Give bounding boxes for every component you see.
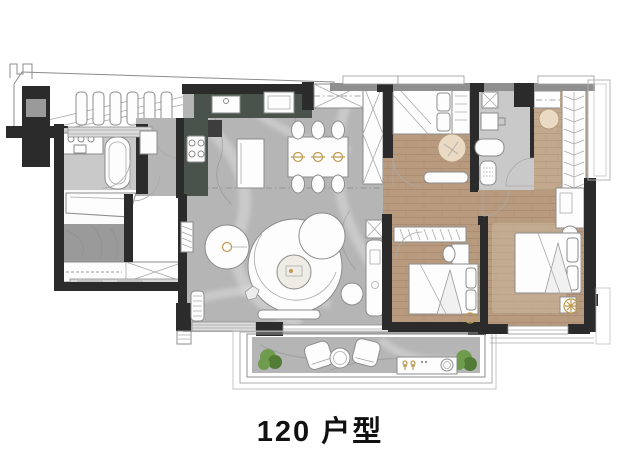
pillow-icon <box>437 113 450 131</box>
tv-console-icon <box>366 240 384 316</box>
sofa-bench <box>258 310 320 319</box>
bathtub-icon <box>475 139 504 156</box>
pillow-icon <box>567 238 578 262</box>
toilet-icon <box>480 161 496 185</box>
shaft-column-2 <box>22 137 50 167</box>
fridge-icon <box>140 131 157 154</box>
balcony-chair-icon <box>351 337 381 367</box>
balcony-table-icon <box>330 348 350 368</box>
coffee-table-icon <box>277 255 311 289</box>
pillow-icon <box>437 93 450 111</box>
tall-cabinet <box>363 84 383 184</box>
cooker-hood-icon <box>264 92 294 113</box>
right-hall <box>534 90 564 200</box>
window-band <box>192 322 256 331</box>
ottoman-icon <box>539 109 559 129</box>
rug-icon <box>424 172 468 183</box>
bedroom-3 <box>382 214 484 332</box>
column <box>514 83 534 107</box>
window-band <box>343 76 398 84</box>
pillow-icon <box>466 268 476 288</box>
desk-chair-icon <box>443 246 455 262</box>
corner-column <box>10 64 32 79</box>
washing-machine-icon <box>397 357 457 374</box>
balcony <box>233 331 496 389</box>
window-band <box>68 127 152 137</box>
round-table-icon <box>438 134 466 162</box>
dining-room <box>288 82 383 193</box>
wardrobe-icon <box>394 227 466 242</box>
pouf-icon <box>341 283 363 305</box>
master-bedroom <box>478 188 590 334</box>
floor-plan-drawing <box>0 0 640 474</box>
floor-plan-canvas: 120 户型 <box>0 0 640 474</box>
window-band <box>398 76 464 84</box>
pillow-icon <box>466 290 476 310</box>
hall-cabinet <box>534 91 564 108</box>
sink-icon <box>481 113 498 130</box>
window-band <box>538 76 594 84</box>
plan-title: 120 户型 <box>0 408 640 450</box>
